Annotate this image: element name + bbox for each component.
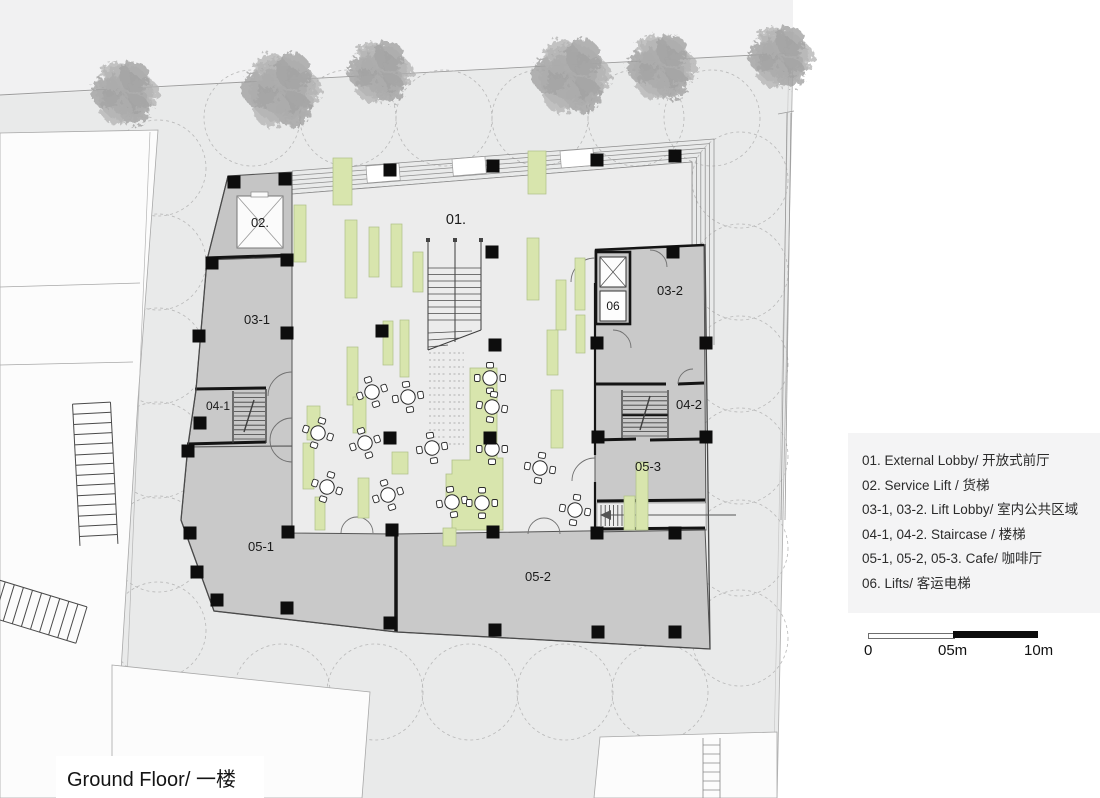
column bbox=[591, 337, 604, 350]
column bbox=[376, 325, 389, 338]
room-label-04-2: 04-2 bbox=[676, 397, 702, 412]
column bbox=[206, 257, 219, 270]
bench bbox=[624, 496, 635, 530]
scale-label-10m: 10m bbox=[1024, 642, 1053, 659]
column bbox=[193, 330, 206, 343]
column bbox=[669, 150, 682, 163]
bench bbox=[369, 227, 379, 277]
column bbox=[281, 254, 294, 267]
scale-bar: 0 05m 10m bbox=[866, 626, 1046, 662]
column bbox=[484, 432, 497, 445]
scale-label-5m: 05m bbox=[938, 642, 967, 659]
legend-item: 05-1, 05-2, 05-3. Cafe/ 咖啡厅 bbox=[862, 547, 1100, 572]
column bbox=[281, 327, 294, 340]
passenger-lifts-symbol bbox=[596, 252, 630, 324]
legend-item: 02. Service Lift / 货梯 bbox=[862, 474, 1100, 499]
column bbox=[669, 626, 682, 639]
column bbox=[384, 617, 397, 630]
column bbox=[700, 337, 713, 350]
room-label-03-1: 03-1 bbox=[244, 312, 270, 327]
column bbox=[486, 246, 499, 259]
bench bbox=[345, 220, 357, 298]
column bbox=[384, 164, 397, 177]
legend-item: 06. Lifts/ 客运电梯 bbox=[862, 572, 1100, 597]
bench bbox=[528, 151, 546, 194]
column bbox=[194, 417, 207, 430]
bench bbox=[392, 452, 408, 474]
legend-item: 01. External Lobby/ 开放式前厅 bbox=[862, 449, 1100, 474]
column bbox=[591, 527, 604, 540]
bench bbox=[551, 390, 563, 448]
bench bbox=[576, 315, 585, 353]
column bbox=[487, 160, 500, 173]
room-label-04-1: 04-1 bbox=[206, 399, 230, 413]
bench bbox=[547, 330, 558, 375]
column bbox=[667, 246, 680, 259]
column bbox=[592, 626, 605, 639]
bench bbox=[556, 280, 566, 330]
neighbor-building-bottom-right bbox=[594, 732, 777, 798]
scale-bar-segment-white bbox=[868, 633, 955, 639]
bench bbox=[391, 224, 402, 287]
bench bbox=[443, 528, 456, 546]
column bbox=[191, 566, 204, 579]
room-label-03-2: 03-2 bbox=[657, 283, 683, 298]
column bbox=[700, 431, 713, 444]
bench bbox=[400, 320, 409, 377]
bench bbox=[294, 205, 306, 262]
column bbox=[591, 154, 604, 167]
bench bbox=[333, 158, 352, 205]
scale-label-0: 0 bbox=[864, 642, 872, 659]
drawing-title: Ground Floor/ 一楼 bbox=[67, 763, 236, 792]
column bbox=[384, 432, 397, 445]
column bbox=[211, 594, 224, 607]
room-label-05-1: 05-1 bbox=[248, 539, 274, 554]
legend-panel: 01. External Lobby/ 开放式前厅 02. Service Li… bbox=[848, 433, 1100, 613]
bench bbox=[358, 478, 369, 518]
column bbox=[282, 526, 295, 539]
room-label-02: 02. bbox=[251, 215, 269, 230]
column bbox=[279, 173, 292, 186]
bench bbox=[575, 258, 585, 310]
column bbox=[386, 524, 399, 537]
building-rooms bbox=[181, 162, 736, 649]
scale-bar-segment-black bbox=[953, 631, 1038, 638]
room-label-01: 01. bbox=[446, 212, 466, 228]
planter-box bbox=[452, 156, 486, 176]
bench bbox=[353, 397, 366, 433]
room-cafe-05-2 bbox=[396, 529, 710, 649]
column bbox=[489, 339, 502, 352]
bench bbox=[347, 347, 358, 405]
legend-item: 03-1, 03-2. Lift Lobby/ 室内公共区域 bbox=[862, 498, 1100, 523]
legend-item: 04-1, 04-2. Staircase / 楼梯 bbox=[862, 523, 1100, 548]
column bbox=[184, 527, 197, 540]
column bbox=[182, 445, 195, 458]
planter-box bbox=[560, 148, 594, 168]
column bbox=[669, 527, 682, 540]
column bbox=[489, 624, 502, 637]
room-label-05-3: 05-3 bbox=[635, 459, 661, 474]
floor-plan-page: 01. 02. 03-1 03-2 04-1 04-2 05-1 05-2 05… bbox=[0, 0, 1100, 798]
column bbox=[228, 176, 241, 189]
room-label-06: 06 bbox=[606, 299, 620, 313]
column bbox=[487, 526, 500, 539]
column bbox=[281, 602, 294, 615]
floor-plan-drawing: 01. 02. 03-1 03-2 04-1 04-2 05-1 05-2 05… bbox=[0, 0, 1100, 798]
bench bbox=[413, 252, 423, 292]
column bbox=[592, 431, 605, 444]
bench bbox=[527, 238, 539, 300]
room-label-05-2: 05-2 bbox=[525, 569, 551, 584]
title-box: Ground Floor/ 一楼 bbox=[56, 756, 264, 798]
